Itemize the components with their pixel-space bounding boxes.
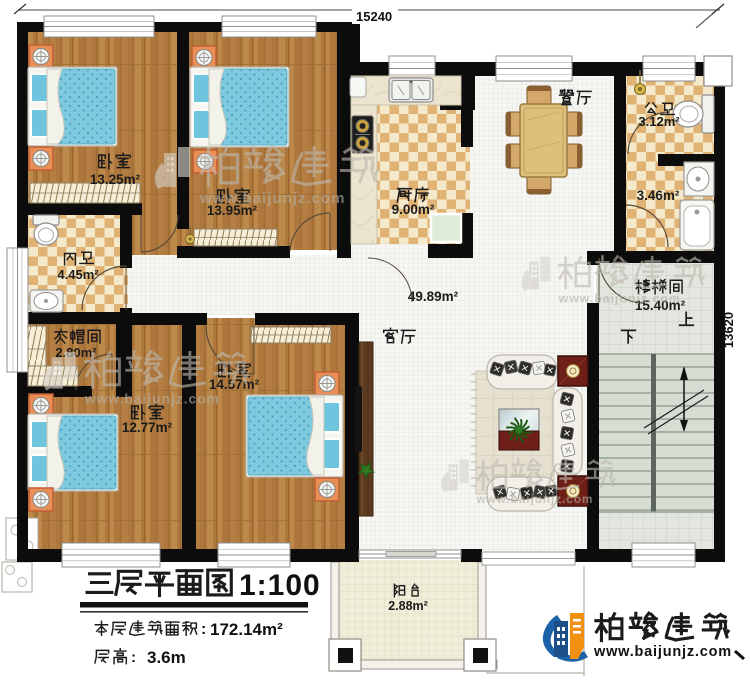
- svg-text::: :: [201, 621, 206, 638]
- svg-text:www.baijunjz.com: www.baijunjz.com: [199, 190, 345, 207]
- svg-text:13620: 13620: [721, 312, 736, 348]
- svg-text:www.baijunjz.com: www.baijunjz.com: [558, 292, 681, 306]
- svg-text:9.00m²: 9.00m²: [392, 202, 435, 217]
- svg-text:1:100: 1:100: [239, 569, 321, 602]
- svg-text:13.25m²: 13.25m²: [90, 172, 141, 187]
- svg-text:3.12m²: 3.12m²: [638, 114, 680, 129]
- svg-text:172.14m²: 172.14m²: [210, 620, 283, 639]
- svg-text:15240: 15240: [356, 9, 392, 24]
- svg-text::: :: [131, 649, 136, 666]
- svg-text:www.baijunjz.com: www.baijunjz.com: [476, 493, 594, 506]
- svg-text:www.baijunjz.com: www.baijunjz.com: [593, 644, 732, 660]
- svg-text:4.45m²: 4.45m²: [57, 267, 99, 282]
- svg-text:3.6m: 3.6m: [147, 648, 186, 667]
- svg-text:www.baijunjz.com: www.baijunjz.com: [84, 391, 220, 406]
- svg-text:3.46m²: 3.46m²: [637, 188, 680, 203]
- svg-text:12.77m²: 12.77m²: [122, 420, 173, 435]
- svg-text:2.88m²: 2.88m²: [388, 599, 428, 613]
- svg-text:49.89m²: 49.89m²: [408, 289, 459, 304]
